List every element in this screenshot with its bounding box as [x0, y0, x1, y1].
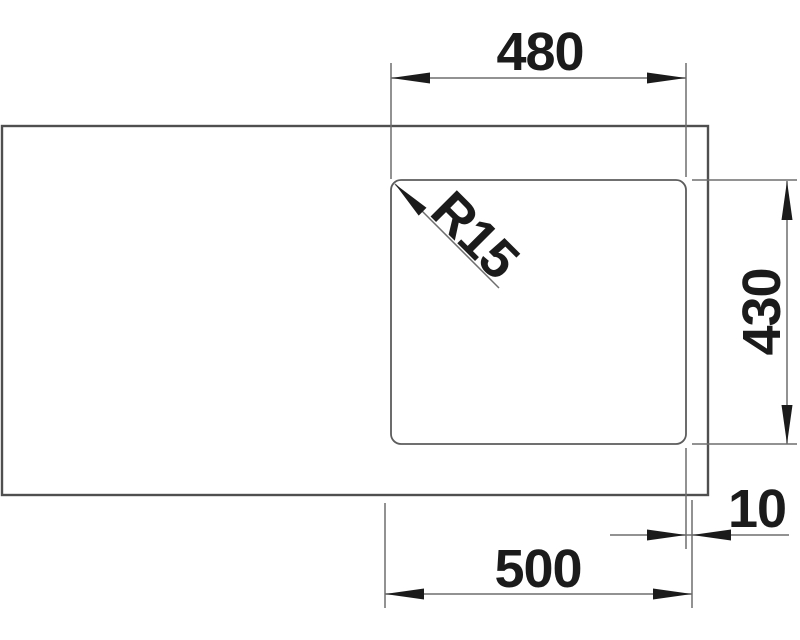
dimension-label-inner-width: 480 [496, 22, 583, 82]
arrowhead-10-right [692, 530, 731, 541]
technical-drawing-canvas: 480 430 R15 10 500 [0, 0, 800, 640]
arrowhead-480-right [647, 73, 686, 84]
dimension-label-outer-width: 500 [494, 539, 581, 599]
dimension-label-edge-offset: 10 [728, 479, 786, 539]
dimension-label-inner-depth: 430 [732, 268, 792, 355]
arrowhead-10-left [647, 530, 686, 541]
arrowhead-430-bottom [782, 405, 793, 444]
sink-outer-outline [2, 126, 708, 495]
arrowhead-430-top [782, 181, 793, 220]
arrowhead-500-left [385, 589, 424, 600]
sink-dimension-drawing: 480 430 R15 10 500 [0, 0, 800, 640]
arrowhead-480-left [391, 73, 430, 84]
arrowhead-500-right [653, 589, 692, 600]
arrowhead-r15 [395, 184, 427, 216]
dimension-label-corner-radius: R15 [420, 180, 530, 290]
